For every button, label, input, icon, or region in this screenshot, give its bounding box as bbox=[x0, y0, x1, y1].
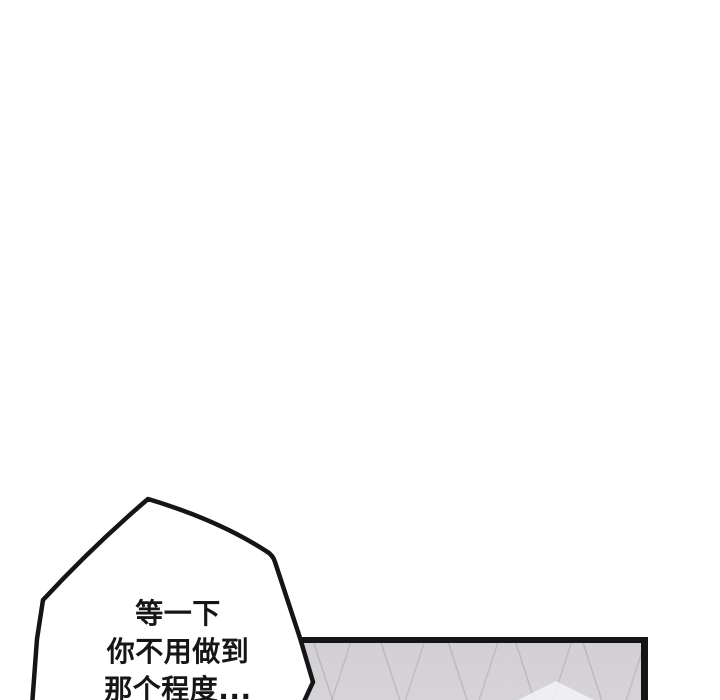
speech-line-1: 等一下 bbox=[38, 595, 318, 633]
speech-text: 等一下 你不用做到 那个程度... bbox=[38, 595, 318, 700]
comic-page: 等一下 你不用做到 那个程度... bbox=[0, 0, 720, 700]
speech-line-2: 你不用做到 bbox=[38, 633, 318, 671]
speech-line-3: 那个程度... bbox=[38, 671, 318, 700]
floor-tile-texture bbox=[290, 637, 648, 700]
comic-frame-floor bbox=[290, 637, 648, 700]
